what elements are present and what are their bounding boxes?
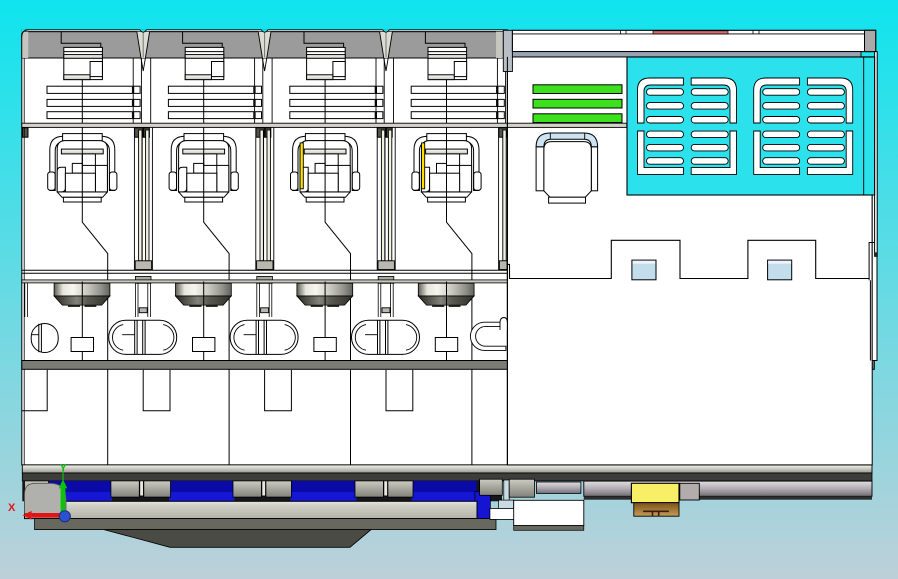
svg-text:X: X [8, 502, 16, 514]
